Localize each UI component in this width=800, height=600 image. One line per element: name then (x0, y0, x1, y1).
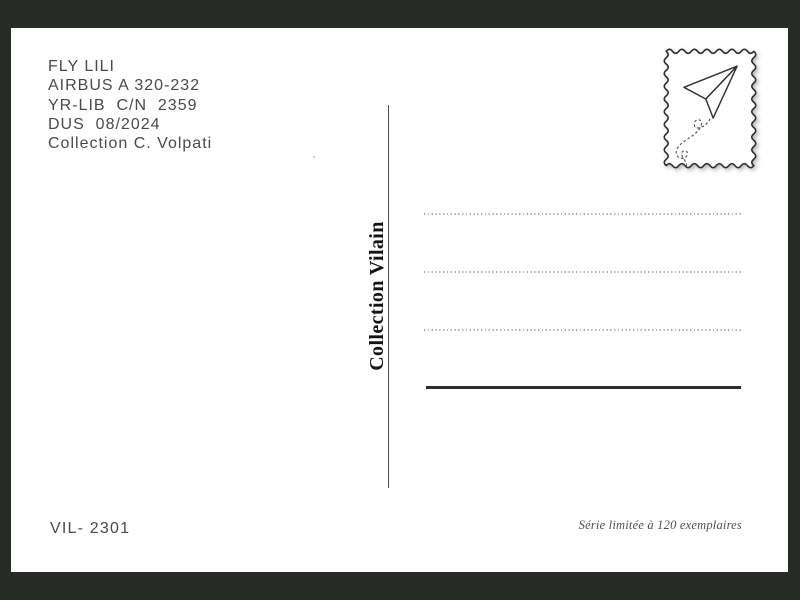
address-dotted-line-3 (424, 329, 742, 331)
info-line-location-date: DUS 08/2024 (48, 115, 212, 134)
vertical-divider-line (388, 105, 389, 488)
info-line-airline: FLY LILI (48, 57, 212, 76)
address-solid-line (426, 386, 741, 389)
print-speck (313, 156, 315, 158)
paper-plane-stamp-icon (660, 45, 760, 172)
info-line-registration: YR-LIB C/N 2359 (48, 96, 212, 115)
address-dotted-line-2 (424, 271, 742, 273)
limited-edition-note: Série limitée à 120 exemplaires (579, 518, 742, 533)
publisher-label: Collection Vilain (366, 211, 390, 381)
stamp-box (660, 45, 760, 172)
aircraft-info-block: FLY LILI AIRBUS A 320-232 YR-LIB C/N 235… (48, 57, 212, 153)
info-line-photographer: Collection C. Volpati (48, 134, 212, 153)
info-line-aircraft: AIRBUS A 320-232 (48, 76, 212, 95)
catalog-number: VIL- 2301 (50, 520, 130, 538)
postcard-back: FLY LILI AIRBUS A 320-232 YR-LIB C/N 235… (11, 28, 788, 572)
address-dotted-line-1 (424, 213, 742, 215)
